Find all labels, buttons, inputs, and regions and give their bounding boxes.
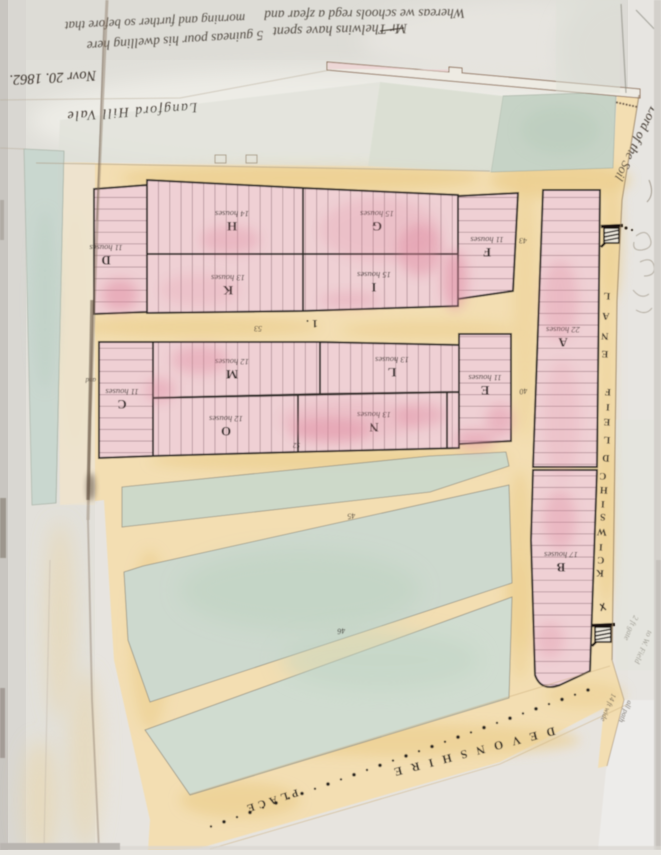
svg-text:O: O [221, 424, 231, 439]
svg-text:12 houses: 12 houses [208, 414, 242, 424]
svg-text:E: E [601, 348, 609, 359]
svg-text:I: I [606, 401, 611, 412]
svg-text:D: D [602, 452, 610, 463]
svg-text:C: C [117, 397, 126, 412]
svg-text:11 houses: 11 houses [89, 243, 123, 253]
svg-text:I: I [599, 541, 604, 552]
svg-text:14 houses: 14 houses [214, 209, 248, 219]
svg-text:W: W [597, 526, 608, 538]
svg-text:E: E [603, 416, 611, 427]
svg-text:1 .: 1 . [306, 317, 318, 331]
svg-text:L: L [387, 365, 396, 380]
svg-text:F: F [483, 245, 491, 260]
svg-text:52: 52 [293, 441, 301, 449]
svg-text:A: A [601, 310, 610, 321]
svg-text:53: 53 [254, 324, 262, 333]
svg-text:40: 40 [519, 386, 528, 396]
svg-text:C: C [597, 554, 605, 565]
svg-text:N: N [600, 330, 609, 341]
svg-text:S: S [599, 511, 606, 522]
svg-text:M: M [226, 367, 238, 382]
svg-text:11 houses: 11 houses [105, 387, 139, 397]
svg-text:11 houses: 11 houses [468, 373, 502, 383]
svg-text:E: E [481, 383, 490, 398]
svg-text:K: K [595, 567, 604, 578]
svg-text:L: L [603, 434, 611, 445]
svg-text:D: D [101, 253, 110, 268]
svg-text:11 houses: 11 houses [470, 235, 504, 245]
svg-text:43: 43 [519, 236, 527, 245]
svg-text:46: 46 [337, 626, 346, 636]
svg-text:13 houses: 13 houses [374, 355, 408, 365]
svg-text:B: B [556, 560, 565, 575]
svg-text:17 houses: 17 houses [543, 550, 577, 560]
svg-text:I: I [601, 498, 606, 509]
svg-text:Whereas we schools regd a zfea: Whereas we schools regd a zfear and [264, 6, 465, 23]
svg-text:I: I [371, 280, 376, 295]
svg-text:H: H [599, 484, 608, 495]
svg-text:45: 45 [347, 511, 356, 521]
svg-text:L: L [603, 290, 611, 301]
svg-text:C: C [599, 470, 607, 481]
svg-text:15 houses: 15 houses [356, 270, 390, 280]
svg-text:F: F [605, 386, 612, 397]
